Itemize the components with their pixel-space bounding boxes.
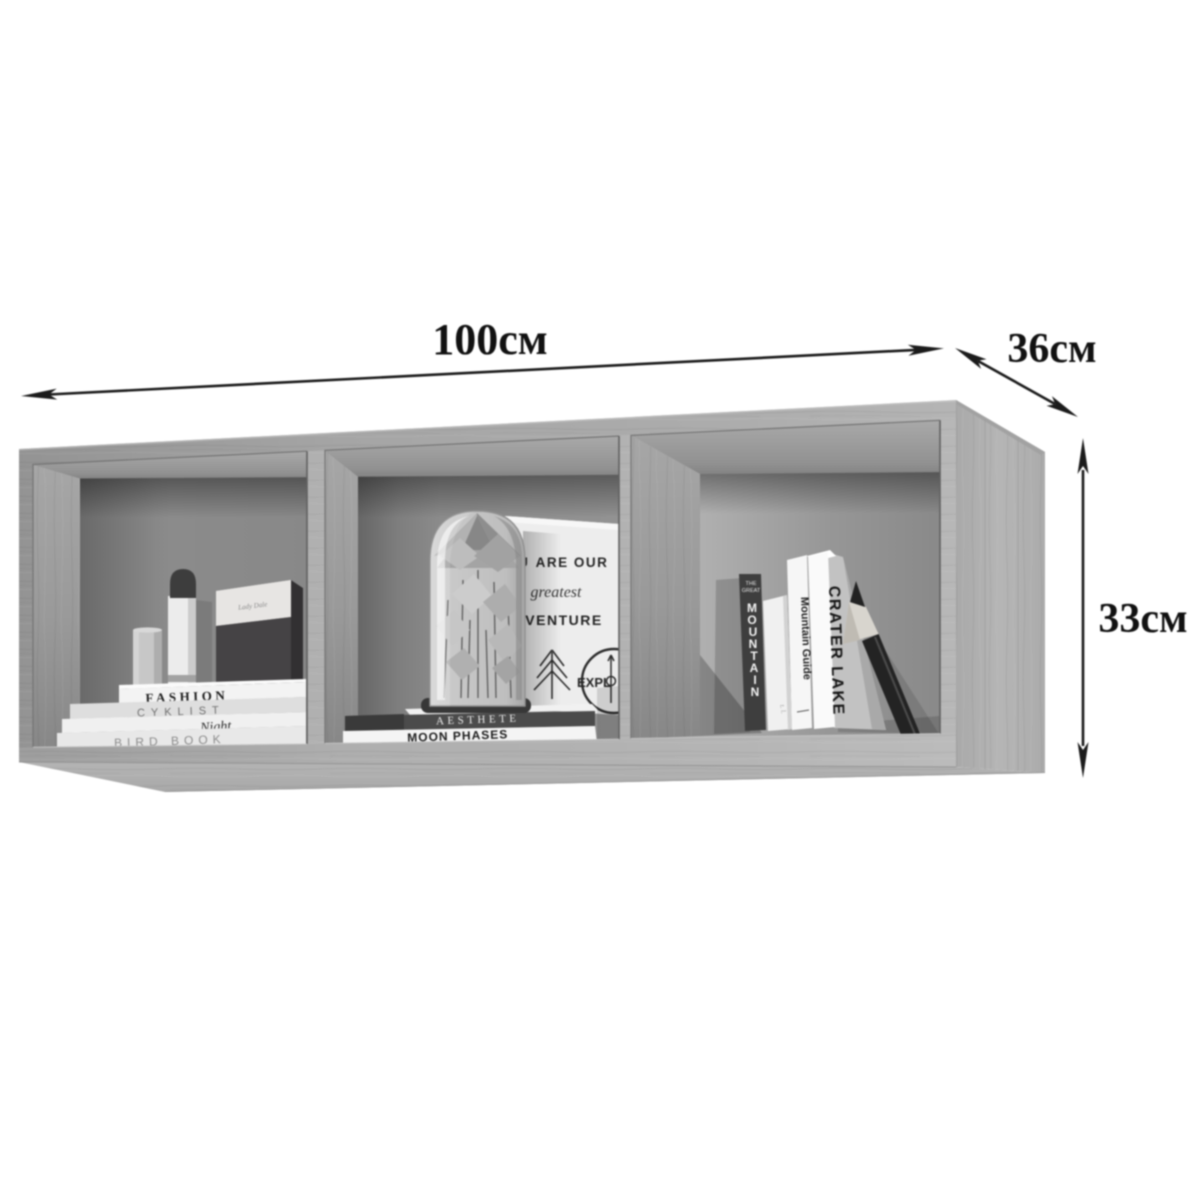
svg-text:100см: 100см [432, 315, 548, 364]
svg-text:N: N [751, 685, 760, 699]
svg-text:t. l.: t. l. [778, 704, 788, 715]
svg-text:33см: 33см [1098, 596, 1187, 642]
svg-text:GREAT: GREAT [742, 588, 761, 594]
svg-text:36см: 36см [1007, 326, 1096, 372]
svg-text:THE: THE [746, 581, 757, 587]
